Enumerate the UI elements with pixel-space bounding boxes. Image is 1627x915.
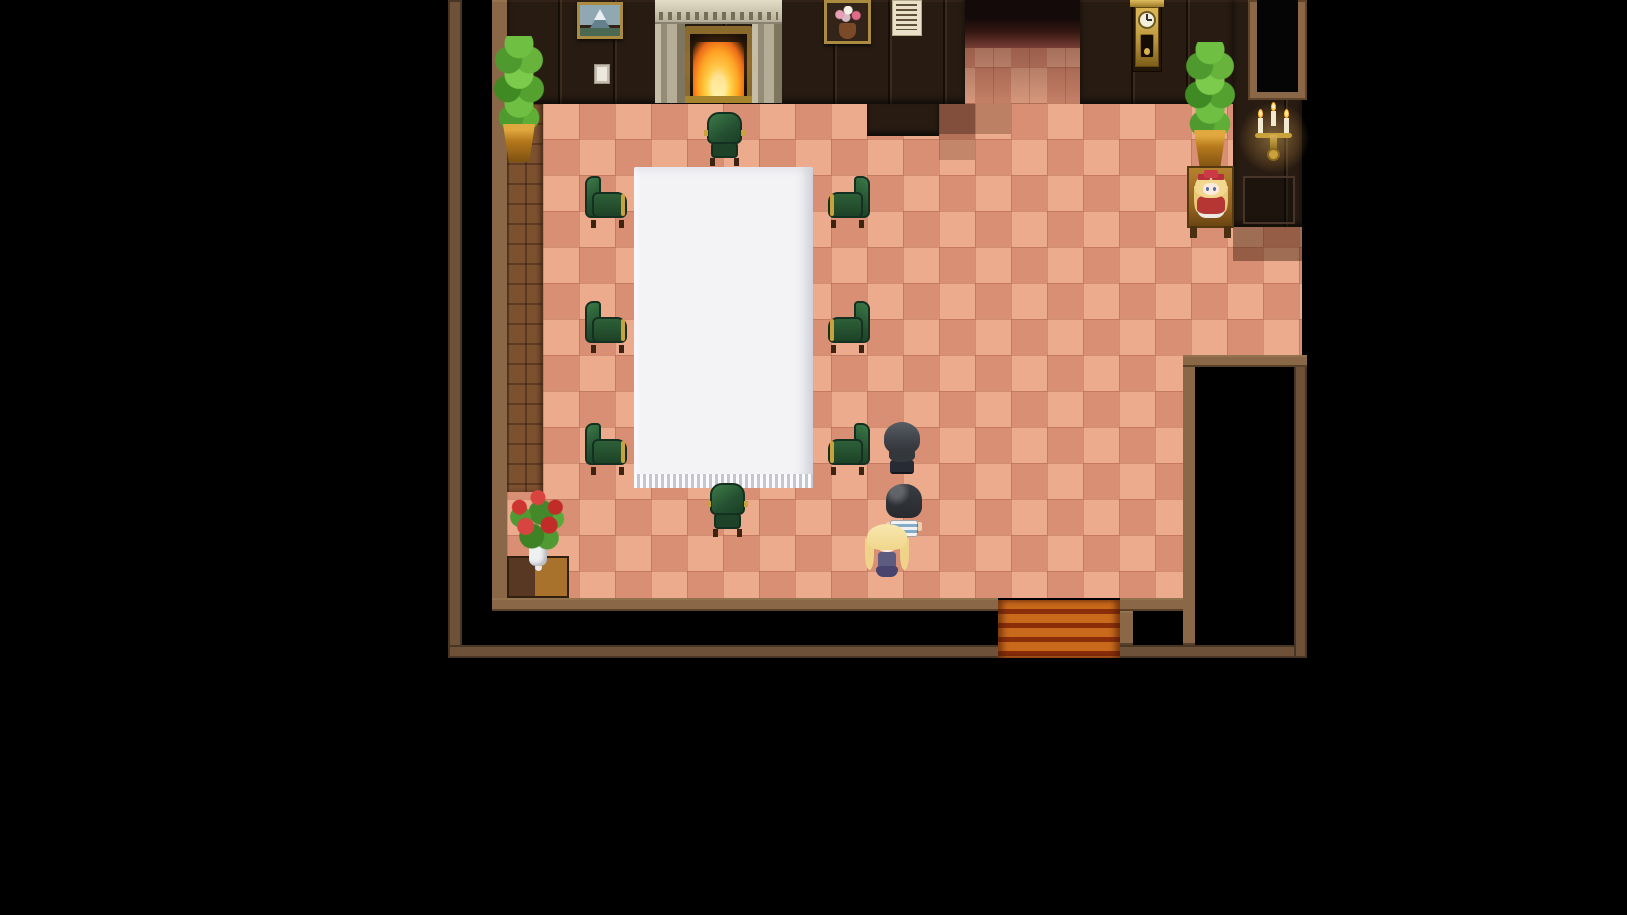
room-wall-bottom-left	[492, 598, 998, 611]
chair-side-right-5	[826, 301, 872, 353]
chair-side-left-3	[583, 423, 629, 475]
doll-hair-bow	[1204, 170, 1218, 178]
chair-part-c-legs	[591, 345, 625, 353]
candelabra-base	[1267, 148, 1280, 161]
room-wall-stub	[1120, 611, 1133, 645]
chair-part-c-trim	[707, 501, 748, 507]
chair-vert-8	[706, 481, 749, 539]
plant-pot	[503, 124, 535, 162]
rose-bouquet-stand	[505, 488, 571, 598]
girl-blonde[interactable]	[864, 524, 910, 582]
candle-flame-1	[1258, 109, 1263, 118]
wall-poster	[892, 0, 922, 36]
painting-flowers	[824, 0, 871, 44]
npc-dark-suit-hair-back	[889, 450, 915, 462]
outer-border-bottom	[448, 645, 1307, 658]
doll-eye-left	[1206, 187, 1209, 191]
clock-crown	[1130, 0, 1164, 7]
notch-wall-top	[1183, 355, 1307, 367]
candle-flame-3	[1284, 109, 1289, 118]
plant-leaves	[1184, 42, 1236, 138]
chair-vert-7	[703, 110, 746, 168]
doll-eye-right	[1213, 187, 1216, 191]
chair-side-right-6	[826, 423, 872, 475]
doll-blonde-red-dress	[1194, 170, 1228, 224]
chair-part-c-legs	[830, 220, 864, 228]
chair-part-c-trim	[704, 130, 745, 136]
chair-side-right-4	[826, 176, 872, 228]
grandfather-clock	[1129, 0, 1165, 73]
doll-table-leg-left	[1190, 226, 1197, 238]
wall-carved-panel	[1243, 176, 1295, 224]
notch-wall-left	[1183, 355, 1195, 645]
chair-part-c-back	[710, 483, 745, 515]
white-banquet-table	[634, 167, 813, 488]
doorway-opening	[1257, 0, 1298, 92]
doll-table	[1187, 166, 1234, 238]
rose-bouquet	[507, 488, 569, 552]
floor-shadow-right-wall	[1233, 227, 1302, 261]
doorway-top-right[interactable]	[1248, 0, 1307, 100]
painting-mountain-ground	[580, 28, 620, 36]
wall-protrusion	[867, 104, 939, 136]
candle-1	[1258, 118, 1263, 133]
chair-part-c-trim	[621, 194, 625, 216]
tile-shadow-1	[939, 104, 975, 134]
chair-part-c-legs	[591, 220, 625, 228]
plant-pot	[1194, 130, 1226, 168]
fireplace	[655, 0, 782, 103]
corridor-darkness	[965, 0, 1080, 52]
chair-side-left-1	[583, 176, 629, 228]
clock-pendulum	[1144, 48, 1150, 55]
tile-shadow-3	[939, 134, 975, 160]
chair-part-c-legs	[830, 345, 864, 353]
chair-part-c-trim	[621, 441, 625, 463]
stairs-south[interactable]	[998, 600, 1120, 658]
girl-blonde-hair	[867, 524, 907, 550]
plant-leaves	[493, 36, 545, 132]
npc-dark-suit[interactable]	[882, 422, 922, 476]
chair-part-c-trim	[621, 319, 625, 341]
light-switch	[594, 64, 610, 84]
chair-part-c-seat	[714, 513, 741, 529]
outer-border-right	[1294, 355, 1307, 658]
doll-table-leg-right	[1224, 226, 1231, 238]
wall-candelabra	[1250, 102, 1297, 172]
npc-dark-suit-body	[890, 460, 914, 474]
girl-blonde-skirt	[876, 566, 898, 577]
chair-part-c-back	[707, 112, 742, 144]
corridor-north[interactable]	[965, 0, 1080, 104]
chair-part-c-legs	[830, 467, 864, 475]
chair-part-c-seat	[711, 142, 738, 158]
candle-3	[1284, 118, 1289, 133]
chair-part-c-trim	[830, 194, 834, 216]
chair-side-left-2	[583, 301, 629, 353]
chair-part-c-trim	[830, 441, 834, 463]
potted-plant-left	[490, 36, 548, 164]
outer-border-left	[448, 0, 462, 658]
fire-glow	[663, 16, 775, 111]
painting-mountain	[577, 2, 623, 39]
tile-shadow-2	[975, 104, 1011, 134]
chair-part-c-trim	[830, 319, 834, 341]
chair-part-c-legs	[591, 467, 625, 475]
wall-poster-text-lines	[896, 4, 917, 30]
potted-plant-right	[1181, 42, 1239, 170]
candle-2	[1271, 111, 1276, 126]
clock-hour-hand	[1147, 19, 1152, 21]
game-screen[interactable]	[0, 0, 1627, 915]
painting-flowers-vase	[839, 23, 856, 39]
npc-striped-hair	[886, 484, 922, 518]
candle-flame-2	[1271, 102, 1276, 111]
chair-part-c-legs	[710, 158, 739, 166]
chair-part-c-legs	[713, 529, 742, 537]
doll-dress	[1197, 196, 1225, 218]
corridor-dim-overlay	[965, 48, 1080, 104]
